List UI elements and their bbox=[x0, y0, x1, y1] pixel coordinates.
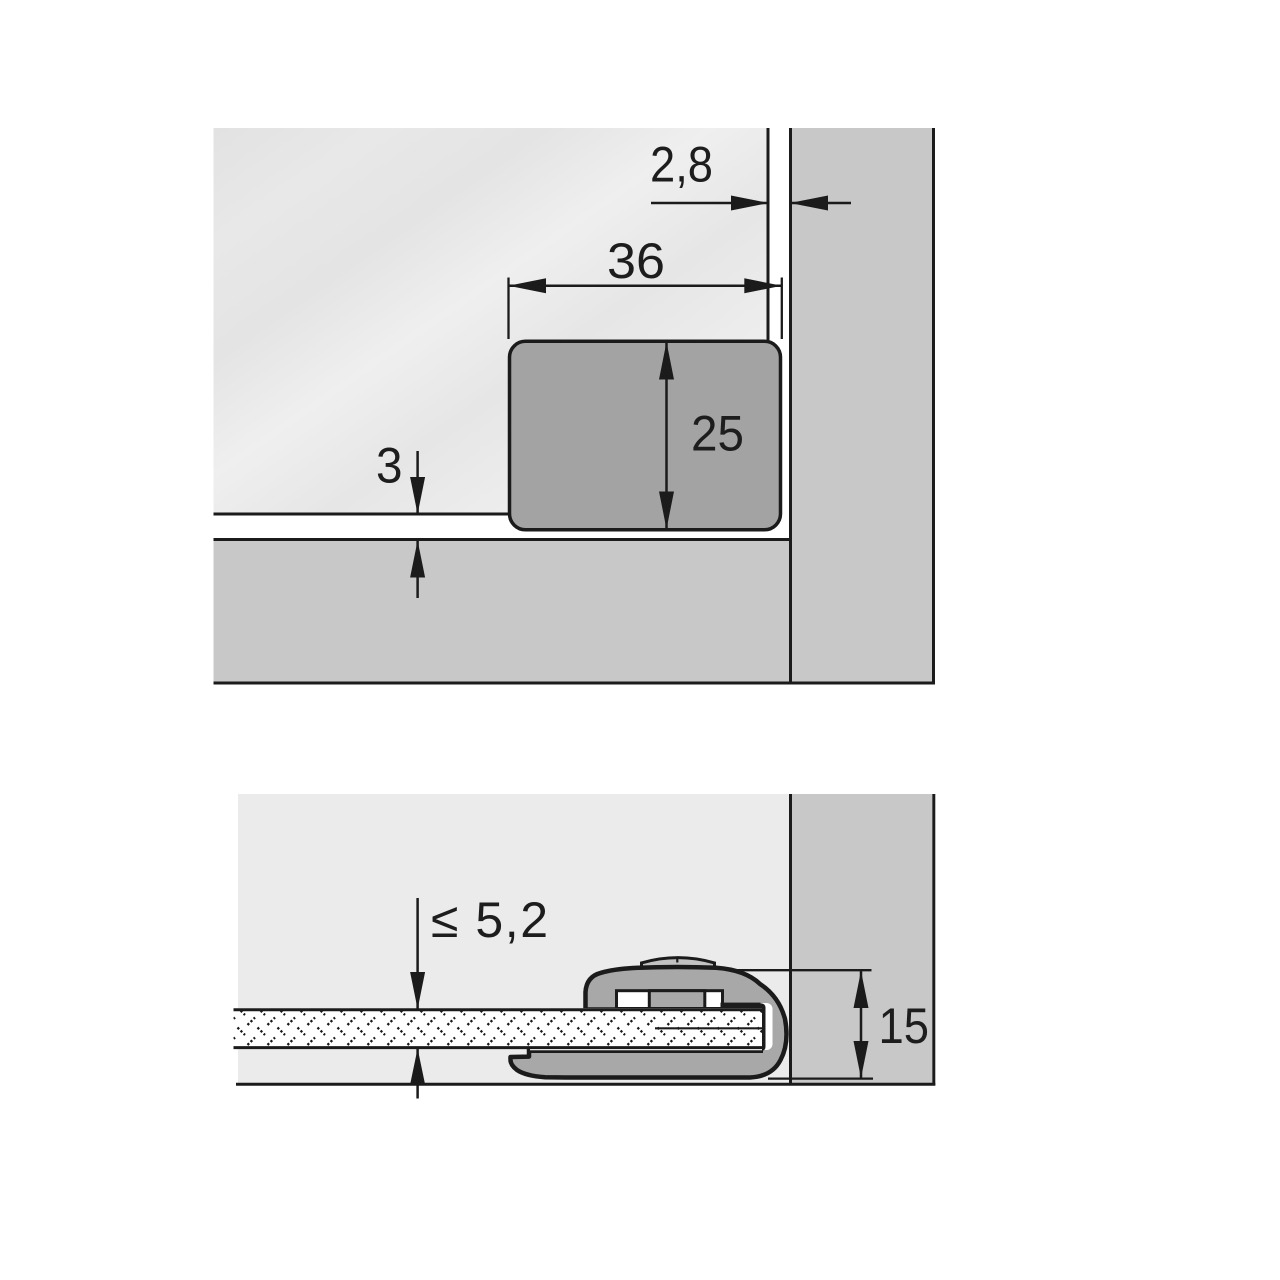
svg-text:2,8: 2,8 bbox=[650, 137, 713, 193]
svg-text:≤ 5,2: ≤ 5,2 bbox=[431, 892, 548, 948]
svg-text:3: 3 bbox=[376, 438, 403, 494]
svg-text:36: 36 bbox=[607, 233, 665, 289]
svg-text:15: 15 bbox=[879, 998, 930, 1054]
svg-text:25: 25 bbox=[691, 406, 744, 462]
